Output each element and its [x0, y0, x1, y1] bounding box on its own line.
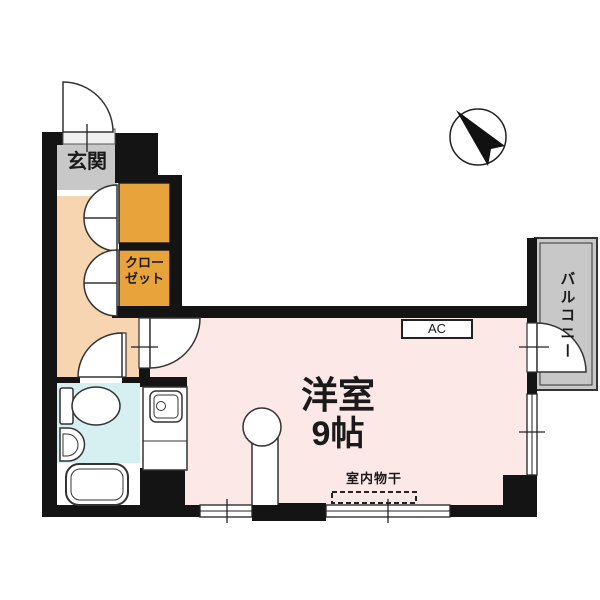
room-door-leaf [139, 318, 150, 368]
north-arrow-icon [450, 109, 506, 166]
storage-upper [119, 183, 170, 243]
wall-bath-right [122, 377, 140, 383]
wall-room-top [112, 306, 527, 318]
wall-closet-right [170, 177, 182, 318]
main-room-size-label: 9帖 [248, 416, 428, 452]
entrance-label: 玄関 [57, 150, 117, 175]
floor-plan: 玄関 クロー ゼット 洋室 9帖 バルコニー AC 室内物干 [0, 0, 600, 600]
wall-entrance-right [115, 133, 158, 177]
wall-bath-left [57, 377, 80, 383]
wall-kitchen-top [140, 377, 187, 387]
kitchen-faucet [157, 402, 166, 411]
entrance-door [63, 82, 113, 132]
toilet-tank [60, 388, 73, 424]
closet-label-line2: ゼット [119, 271, 170, 287]
floor-plan-drawing [0, 0, 600, 600]
ac-label: AC [402, 320, 472, 338]
toilet-bowl [72, 387, 120, 425]
balcony-label: バルコニー [535, 243, 597, 388]
wall-bottom-mid [252, 503, 326, 521]
closet-label: クロー ゼット [119, 255, 170, 288]
wall-left [42, 132, 57, 517]
main-room-label-group: 洋室 9帖 [248, 376, 428, 452]
main-room-label: 洋室 [248, 376, 428, 416]
wall-top-left [42, 132, 63, 145]
bathtub-inner [71, 469, 123, 500]
wall-closet-divider [119, 243, 170, 250]
indoor-laundry-label: 室内物干 [328, 471, 420, 487]
wall-bottom-left [42, 505, 200, 517]
wall-corner-bottom-right [503, 475, 537, 517]
closet-label-line1: クロー [119, 255, 170, 271]
